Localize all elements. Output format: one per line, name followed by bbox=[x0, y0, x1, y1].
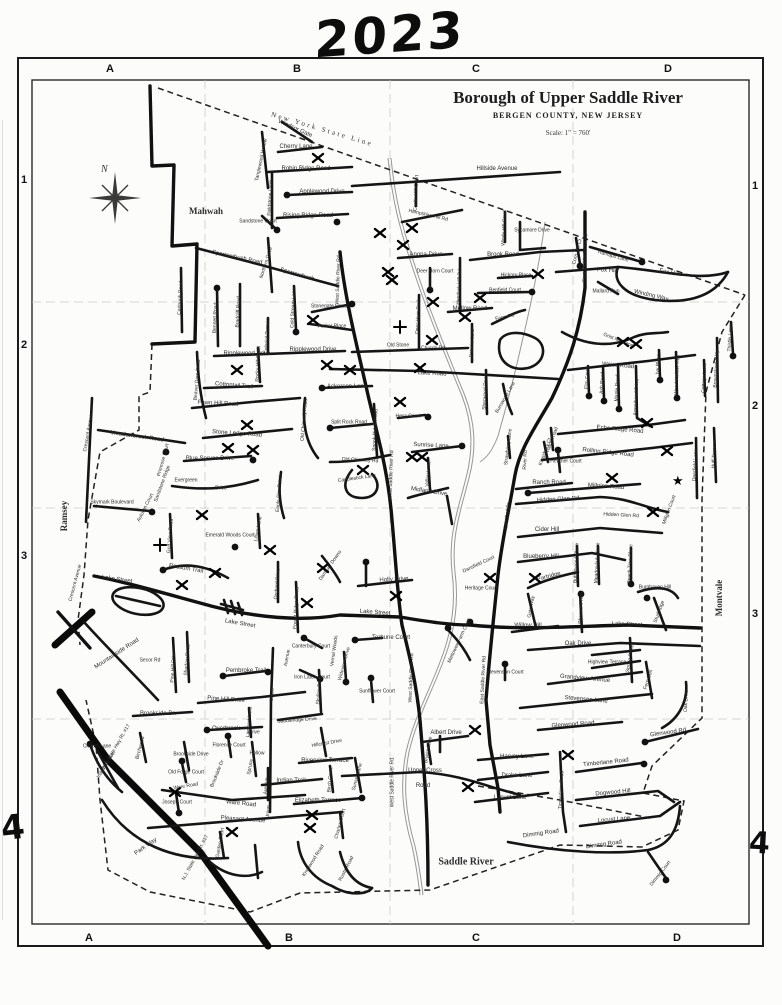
street-label: Indian Trail bbox=[276, 778, 305, 784]
street-label: Applewood Drive bbox=[299, 189, 344, 195]
map-scale: Scale: 1" = 760' bbox=[418, 129, 718, 137]
street-label: Ivy Place bbox=[656, 354, 662, 375]
grid-reference: D bbox=[664, 63, 672, 75]
street-label: River Rd bbox=[523, 450, 529, 470]
x-mark bbox=[463, 783, 473, 791]
street-label: Riverview Terrace bbox=[301, 758, 349, 764]
cul-de-sac-dot bbox=[160, 567, 167, 574]
x-mark bbox=[227, 828, 237, 836]
x-mark bbox=[322, 361, 332, 369]
street-label: Road bbox=[416, 783, 430, 789]
street-label: Union bbox=[266, 805, 272, 818]
street-label: Old Stone bbox=[387, 343, 409, 348]
neighbor-label-ramsey: Ramsey bbox=[59, 501, 69, 532]
street-label: Drive bbox=[215, 486, 227, 491]
street-label: Brookside Dr. bbox=[140, 711, 176, 717]
x-mark bbox=[302, 599, 312, 607]
x-mark bbox=[305, 824, 315, 832]
x-mark bbox=[375, 229, 385, 237]
street-label: Split Rock Road bbox=[331, 420, 367, 425]
grid-reference: C bbox=[472, 63, 480, 75]
x-mark bbox=[407, 453, 417, 461]
street-label: Church Rd bbox=[421, 346, 445, 351]
cul-de-sac-dot bbox=[250, 457, 257, 464]
grid-reference: 2 bbox=[752, 400, 758, 412]
grid-reference: 1 bbox=[752, 180, 758, 192]
street-label: Rising Ridge Road bbox=[283, 213, 333, 219]
svg-text:N: N bbox=[100, 164, 109, 175]
street-label: Sandstone Court bbox=[239, 219, 277, 224]
street-label: Overbrook bbox=[212, 726, 240, 732]
cul-de-sac-dot bbox=[319, 385, 326, 392]
street-label: Canterbury Court bbox=[292, 644, 330, 649]
cul-de-sac-dot bbox=[642, 739, 649, 746]
street-label: Chapel Lane bbox=[83, 744, 111, 749]
street-label: Ranch Road bbox=[532, 480, 565, 486]
map-title: Borough of Upper Saddle River bbox=[418, 88, 718, 108]
x-mark bbox=[197, 511, 207, 519]
street-label: Parker Place bbox=[318, 324, 347, 329]
grid-reference: C bbox=[472, 932, 480, 944]
grid-reference: 1 bbox=[21, 174, 27, 186]
cul-de-sac-dot bbox=[425, 414, 432, 421]
street-label: Heritage Court bbox=[465, 586, 498, 591]
cul-de-sac-dot bbox=[586, 393, 593, 400]
street-label: Blue Spruce Drive bbox=[186, 456, 234, 462]
cul-de-sac-dot bbox=[225, 733, 232, 740]
street-label: Upper Cross bbox=[408, 768, 442, 774]
grid-reference: B bbox=[285, 932, 293, 944]
cul-de-sac-dot bbox=[343, 679, 350, 686]
x-mark bbox=[407, 224, 417, 232]
street-label: West Saddle River Rd. bbox=[390, 757, 395, 807]
street-label: Hess Court bbox=[395, 414, 420, 419]
street-label: Union bbox=[270, 688, 276, 701]
street-label: Fox Hill bbox=[597, 267, 617, 274]
street-label: Evergreen bbox=[174, 478, 197, 483]
cul-de-sac-dot bbox=[502, 661, 509, 668]
street-label: Heather Court bbox=[550, 459, 581, 464]
map-subtitle: BERGEN COUNTY, NEW JERSEY bbox=[418, 111, 718, 120]
scanned-map-page: 2023 bbox=[0, 0, 782, 1005]
street-label: Robin Ridge Road bbox=[281, 166, 330, 172]
grid-reference: 2 bbox=[21, 339, 27, 351]
x-mark bbox=[460, 313, 470, 321]
handwritten-grid-4-left: 4 bbox=[0, 807, 27, 849]
x-mark bbox=[533, 270, 543, 278]
street-label: Blueberry Hill bbox=[523, 554, 559, 560]
cul-de-sac-dot bbox=[179, 758, 186, 765]
street-label: Brook Road bbox=[487, 252, 519, 258]
cul-de-sac-dot bbox=[644, 595, 651, 602]
x-mark bbox=[485, 574, 495, 582]
x-mark bbox=[563, 751, 573, 759]
street-label: Ackerson Lane bbox=[327, 384, 367, 390]
cul-de-sac-dot bbox=[363, 559, 370, 566]
cul-de-sac-dot bbox=[301, 635, 308, 642]
x-mark bbox=[417, 453, 427, 461]
street-label: Florence Court bbox=[212, 743, 245, 748]
title-block: Borough of Upper Saddle River BERGEN COU… bbox=[418, 88, 718, 137]
street-label: Sycamore Drive bbox=[514, 228, 550, 233]
plus-mark bbox=[394, 321, 406, 333]
street-label: Mellow Road bbox=[453, 306, 488, 312]
cul-de-sac-dot bbox=[616, 406, 623, 413]
cul-de-sac-dot bbox=[657, 377, 664, 384]
compass-rose: N bbox=[89, 164, 141, 224]
road-network bbox=[55, 122, 733, 946]
street-label: Willow Hill bbox=[514, 623, 541, 629]
street-label: Ripplewood Drive bbox=[289, 347, 336, 353]
neighbor-label-saddle-river: Saddle River bbox=[438, 857, 493, 868]
grid-reference: D bbox=[673, 932, 681, 944]
x-mark bbox=[313, 154, 323, 162]
cul-de-sac-dot bbox=[176, 810, 183, 817]
cul-de-sac-dot bbox=[601, 398, 608, 405]
street-label: Albert Drive bbox=[430, 730, 461, 736]
street-label: Skymark Boulevard bbox=[90, 500, 133, 505]
cul-de-sac-dot bbox=[445, 625, 452, 632]
cul-de-sac-dot bbox=[529, 289, 536, 296]
street-label: Harvey Lane bbox=[500, 754, 534, 760]
grid-reference: 3 bbox=[752, 608, 758, 620]
street-label: Stonegate Road bbox=[311, 304, 347, 309]
cul-de-sac-dot bbox=[641, 761, 648, 768]
street-label: Cherry Lane bbox=[279, 144, 312, 150]
cul-de-sac-dot bbox=[427, 287, 434, 294]
street-label: Lake Street bbox=[612, 621, 643, 628]
x-mark bbox=[248, 446, 258, 454]
x-mark bbox=[395, 398, 405, 406]
x-mark bbox=[242, 421, 252, 429]
star-mark: ★ bbox=[672, 473, 684, 488]
cul-de-sac-dot bbox=[368, 675, 375, 682]
grid-reference: 3 bbox=[21, 550, 27, 562]
cul-de-sac-dot bbox=[334, 219, 341, 226]
street-label: Mallard Run bbox=[593, 289, 620, 294]
street-label: Sunflower Court bbox=[359, 689, 395, 694]
street-label: Stevenson Court bbox=[486, 670, 523, 675]
cul-de-sac-dot bbox=[274, 227, 281, 234]
street-label: Benfield Court bbox=[489, 288, 521, 293]
x-mark bbox=[223, 444, 233, 452]
street-label: Elizabeth Terrace bbox=[295, 798, 341, 804]
plus-mark bbox=[154, 539, 166, 551]
street-label: Burghaven Hill bbox=[639, 585, 672, 590]
handwritten-grid-4-right: 4 bbox=[748, 825, 771, 861]
cul-de-sac-dot bbox=[730, 353, 737, 360]
street-label: Brookside Drive bbox=[173, 752, 208, 757]
x-mark bbox=[470, 726, 480, 734]
x-mark bbox=[662, 447, 672, 455]
x-mark bbox=[265, 546, 275, 554]
x-mark bbox=[387, 276, 397, 284]
street-label: Locust Lane bbox=[494, 795, 527, 801]
street-label: Terhune Court bbox=[372, 635, 410, 641]
street-label: Hollow bbox=[249, 751, 264, 756]
cul-de-sac-dot bbox=[293, 329, 300, 336]
street-label: Anona Drive bbox=[409, 252, 442, 258]
street-label: Joseph Court bbox=[162, 800, 192, 805]
cul-de-sac-dot bbox=[349, 301, 356, 308]
cul-de-sac-dot bbox=[284, 192, 291, 199]
cul-de-sac-dot bbox=[555, 447, 562, 454]
street-label: Emerald Woods Court bbox=[205, 533, 254, 538]
cul-de-sac-dot bbox=[204, 727, 211, 734]
cul-de-sac-dot bbox=[525, 490, 532, 497]
street-label: Iron Latch Court bbox=[294, 675, 330, 680]
cul-de-sac-dot bbox=[639, 259, 646, 266]
cul-de-sac-dot bbox=[674, 395, 681, 402]
street-label: Cider Hill bbox=[535, 527, 559, 533]
grid-reference: A bbox=[106, 63, 114, 75]
street-label: Hillside Avenue bbox=[477, 166, 518, 172]
street-label: Secor Rd bbox=[140, 658, 161, 663]
cul-de-sac-dot bbox=[663, 877, 670, 884]
cul-de-sac-dot bbox=[149, 509, 156, 516]
cul-de-sac-dot bbox=[459, 443, 466, 450]
street-label: Old Forge Court bbox=[168, 770, 204, 775]
x-mark bbox=[358, 466, 368, 474]
street-label: Deer Horn Court bbox=[417, 269, 454, 274]
street-label: Oak Drive bbox=[565, 641, 592, 647]
cul-de-sac-dot bbox=[214, 285, 221, 292]
neighbor-label-montvale: Montvale bbox=[714, 580, 724, 617]
x-mark bbox=[398, 241, 408, 249]
x-mark bbox=[177, 581, 187, 589]
cul-de-sac-dot bbox=[352, 637, 359, 644]
street-label: Ripplewood Drive bbox=[223, 351, 270, 357]
street-label: Highview Terrace bbox=[588, 660, 626, 665]
x-mark bbox=[308, 316, 318, 324]
grid-reference: B bbox=[293, 63, 301, 75]
neighbor-label-mahwah: Mahwah bbox=[189, 206, 223, 216]
x-mark bbox=[232, 366, 242, 374]
cul-de-sac-dot bbox=[232, 544, 239, 551]
grid-reference: A bbox=[85, 932, 93, 944]
x-mark bbox=[383, 268, 393, 276]
x-mark bbox=[607, 474, 617, 482]
street-label: Hickory Place bbox=[501, 273, 532, 278]
cul-de-sac-dot bbox=[359, 795, 366, 802]
street-label: Pembroke Trail bbox=[226, 668, 266, 674]
x-mark bbox=[427, 336, 437, 344]
x-mark bbox=[475, 294, 485, 302]
street-label: Drake Lane bbox=[501, 773, 532, 779]
